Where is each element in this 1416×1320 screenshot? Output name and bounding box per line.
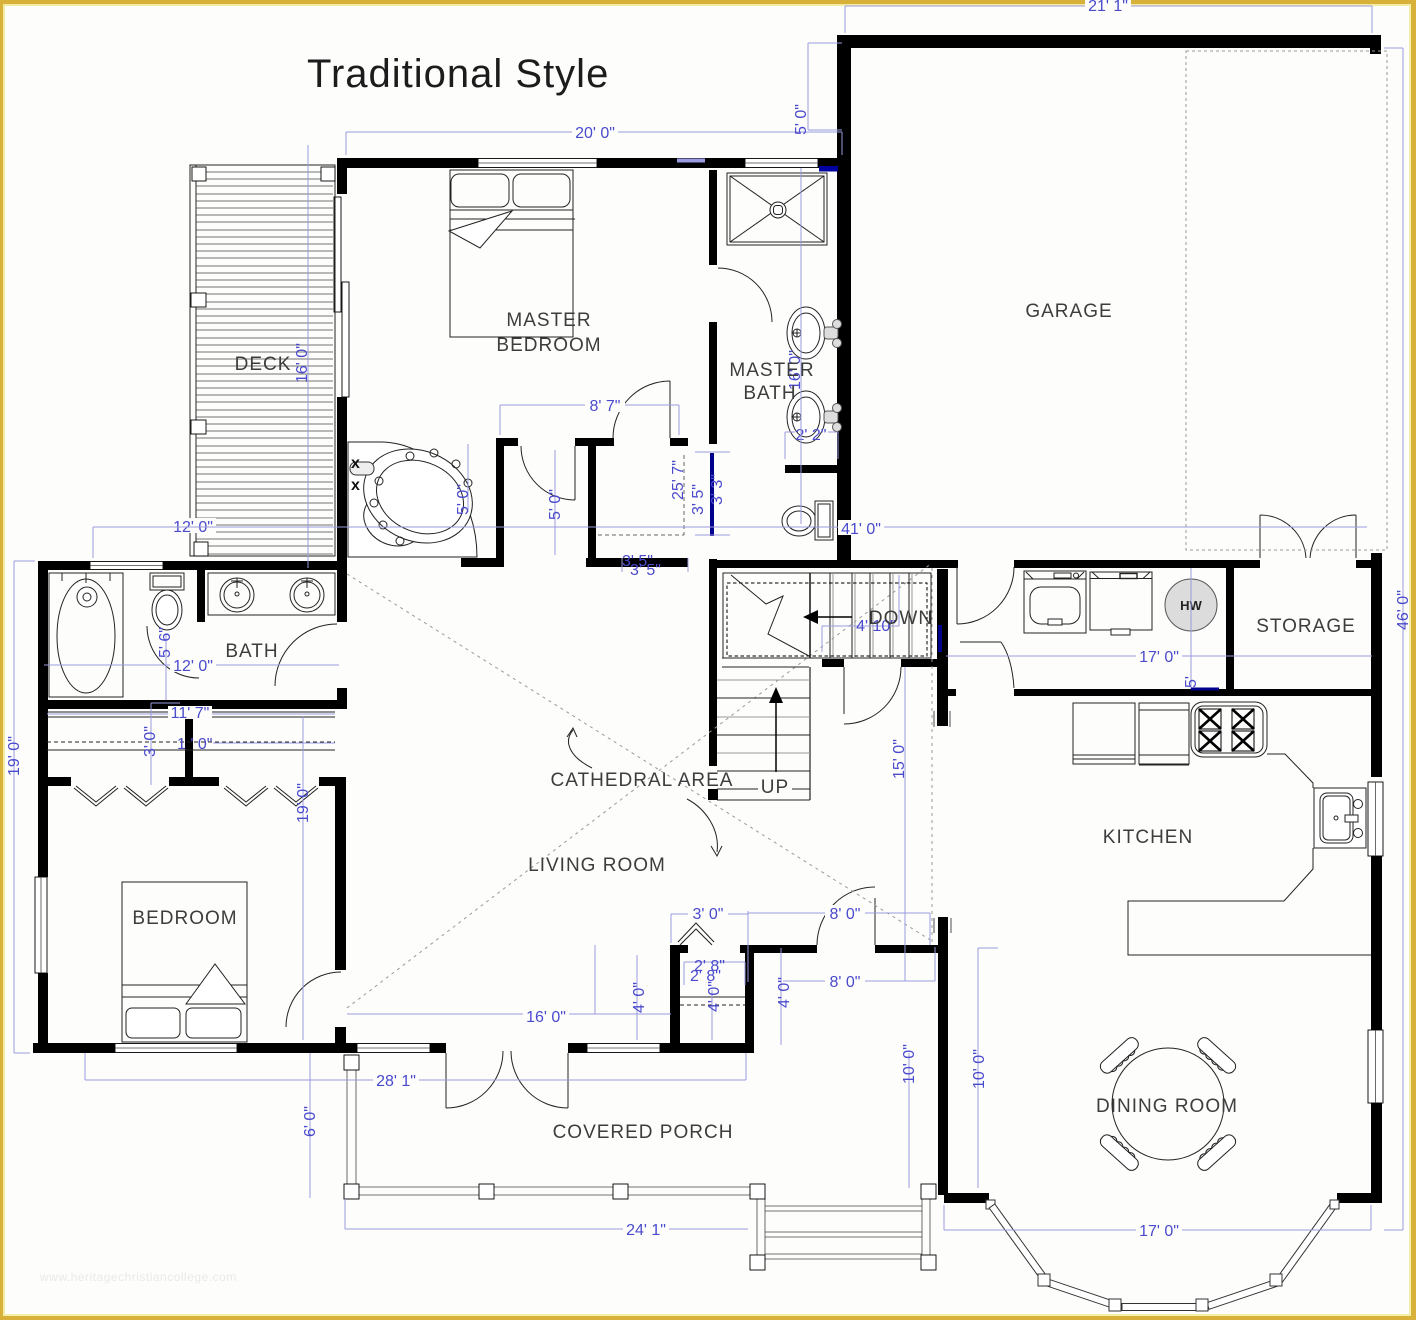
svg-text:5' 0": 5' 0" [547,489,564,520]
svg-text:25' 7": 25' 7" [670,460,687,500]
svg-text:20' 0": 20' 0" [575,125,615,142]
svg-text:4' 0": 4' 0" [776,977,793,1008]
svg-text:12' 0": 12' 0" [173,658,213,675]
svg-text:UP: UP [761,777,789,798]
svg-text:17' 0": 17' 0" [1139,1223,1179,1240]
svg-text:6' 0": 6' 0" [302,1106,319,1137]
svg-text:8' 0": 8' 0" [830,906,861,923]
svg-text:17' 0": 17' 0" [1139,649,1179,666]
svg-text:8' 0": 8' 0" [830,974,861,991]
svg-text:2' 2": 2' 2" [796,427,827,444]
svg-text:MASTER: MASTER [506,310,591,331]
svg-text:1 ' 0": 1 ' 0" [177,736,212,753]
svg-text:24' 1": 24' 1" [626,1222,666,1239]
svg-text:BATH: BATH [743,383,796,404]
svg-text:Traditional Style: Traditional Style [307,52,609,96]
svg-text:10' 0": 10' 0" [971,1049,988,1089]
svg-text:BATH: BATH [225,641,278,662]
svg-text:16' 0": 16' 0" [294,343,311,383]
svg-text:x: x [351,477,360,494]
svg-text:5' 0": 5' 0" [793,104,810,135]
svg-text:5': 5' [1183,676,1200,688]
svg-text:19' 0": 19' 0" [6,736,23,776]
svg-text:MASTER: MASTER [729,360,814,381]
svg-text:15' 0": 15' 0" [891,739,908,779]
svg-text:28' 1": 28' 1" [376,1073,416,1090]
svg-text:3' 0": 3' 0" [693,906,724,923]
svg-text:KITCHEN: KITCHEN [1103,827,1193,848]
svg-text:DOWN: DOWN [869,608,933,629]
svg-text:www.heritagechristiancollege.c: www.heritagechristiancollege.com [39,1270,237,1284]
svg-text:4' 0": 4' 0" [706,981,723,1012]
svg-text:DINING ROOM: DINING ROOM [1096,1096,1238,1117]
svg-text:11' 7": 11' 7" [171,705,210,722]
svg-text:BEDROOM: BEDROOM [132,908,237,929]
svg-text:41' 0": 41' 0" [841,521,881,538]
svg-text:21' 1": 21' 1" [1088,0,1128,15]
svg-text:16' 0": 16' 0" [526,1009,566,1026]
svg-text:GARAGE: GARAGE [1025,301,1112,322]
svg-text:5' 0": 5' 0" [455,484,472,515]
svg-text:CATHEDRAL AREA: CATHEDRAL AREA [551,770,734,791]
svg-text:STORAGE: STORAGE [1256,616,1356,637]
svg-text:x: x [351,455,360,472]
svg-text:3' 5": 3' 5" [690,484,707,515]
svg-text:DECK: DECK [235,354,292,375]
svg-text:COVERED PORCH: COVERED PORCH [553,1122,734,1143]
svg-text:46' 0": 46' 0" [1395,590,1412,630]
svg-text:4' 0": 4' 0" [631,982,648,1013]
svg-text:10' 0": 10' 0" [901,1044,918,1084]
svg-text:LIVING ROOM: LIVING ROOM [528,855,666,876]
svg-text:BEDROOM: BEDROOM [496,335,601,356]
svg-text:3' 0": 3' 0" [142,726,159,757]
svg-text:3' 3": 3' 3" [709,474,726,505]
svg-text:19' 0": 19' 0" [295,783,312,823]
svg-text:5' 6": 5' 6" [157,627,174,658]
svg-text:3' 5": 3' 5" [630,562,661,579]
svg-text:8' 7": 8' 7" [590,398,621,415]
